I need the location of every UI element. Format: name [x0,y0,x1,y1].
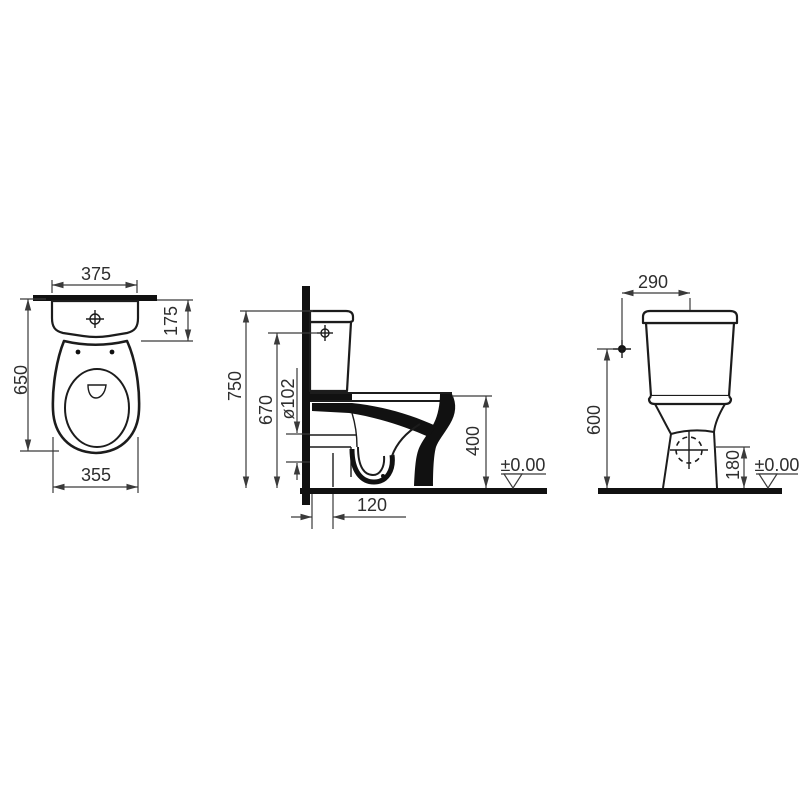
dim-label-650: 650 [11,365,31,395]
top-view: 375 650 355 175 [11,264,193,493]
rear-view: 290 600 180 ±0.00 [584,272,799,494]
cistern-base-lip [649,396,731,404]
pedestal-side [714,432,717,488]
floor-datum-icon: ±0.00 [755,455,800,488]
bowl-rear-wall-section [414,394,455,486]
pedestal-top-line [671,430,714,434]
dim-label-290: 290 [638,272,668,292]
cistern-lid-outline [643,311,737,323]
dim-label-o102: ø102 [278,378,298,419]
dim-label-600: 600 [584,405,604,435]
bowl-inner-line [352,413,357,447]
dim-label-120: 120 [357,495,387,515]
bowl-curve-left [655,404,671,434]
trap-drain-dot [381,474,385,478]
dim-label-175: 175 [161,306,181,336]
dim-tank-depth: 175 [141,300,193,341]
outlet-drain-icon [670,431,708,469]
dim-label-670: 670 [256,395,276,425]
wall-line [302,286,310,505]
pedestal-side [663,434,671,488]
floor-datum-icon: ±0.00 [501,455,546,488]
toilet-dimension-drawing: 375 650 355 175 [0,0,800,800]
side-view: 750 670 ø102 400 120 [225,286,547,529]
seat-section [310,393,352,401]
floor-line [598,488,782,494]
dim-label-750: 750 [225,371,245,401]
seat-hinge-hole [76,350,81,355]
floor-line [300,488,547,494]
water-supply-icon [613,340,631,358]
dim-rim-height: 400 [452,396,492,488]
dim-label-400: 400 [463,426,483,456]
dim-label-375: 375 [81,264,111,284]
cistern-front-outline [646,323,734,396]
bowl-curve-right [714,404,725,432]
datum-label: ±0.00 [755,455,800,475]
bowl-rim-section [312,403,436,437]
dim-label-355: 355 [81,465,111,485]
datum-label: ±0.00 [501,455,546,475]
dim-inlet-height: 600 [584,349,615,488]
technical-drawing-page: 375 650 355 175 [0,0,800,800]
cistern-lid-outline [310,311,353,322]
dim-outlet-height: 180 [716,447,750,488]
trap-inner-curve [358,447,384,475]
seat-hinge-hole [110,350,115,355]
dim-tank-width: 375 [52,264,137,293]
dim-label-180: 180 [723,450,743,480]
